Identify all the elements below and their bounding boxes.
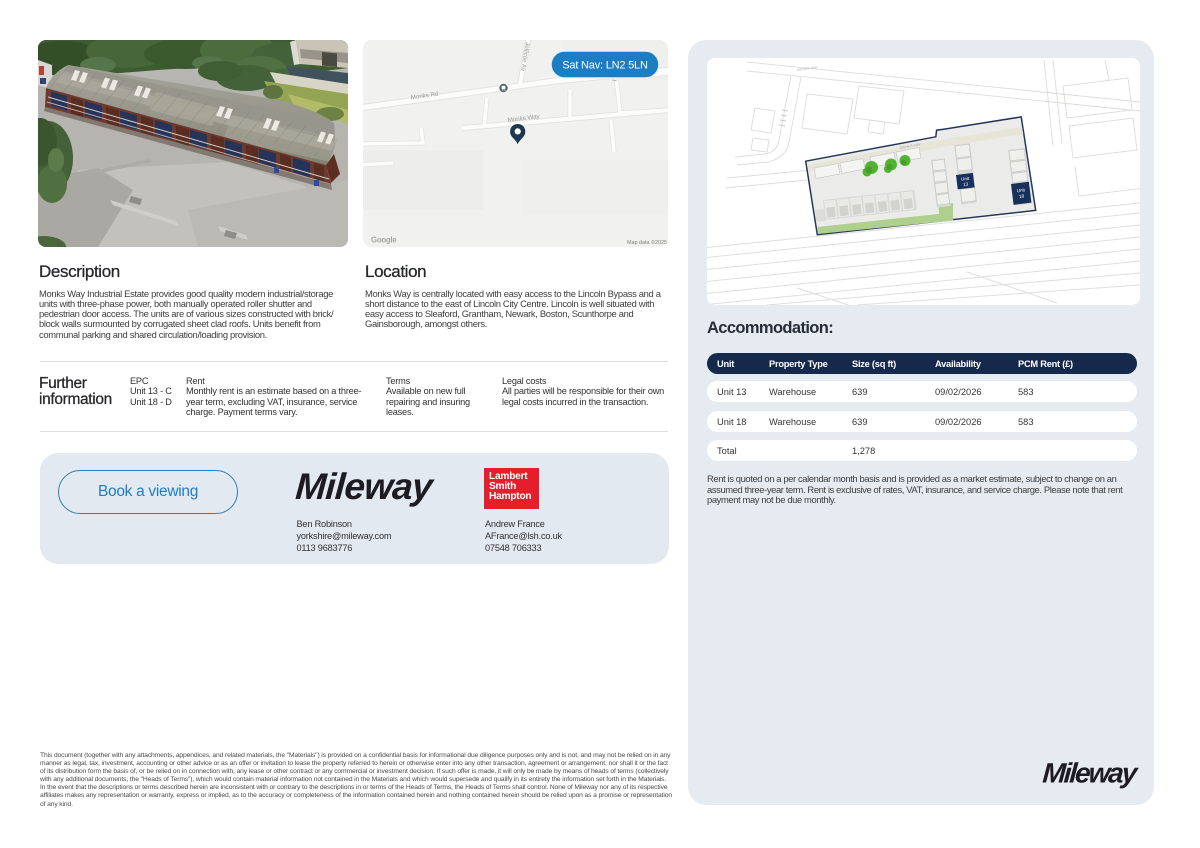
- svg-text:MONKS WAY: MONKS WAY: [797, 65, 819, 72]
- svg-text:Sat Nav: LN2 5LN: Sat Nav: LN2 5LN: [562, 60, 648, 72]
- svg-text:Mileway: Mileway: [294, 467, 436, 507]
- svg-text:Google: Google: [371, 236, 397, 245]
- svg-text:Mileway: Mileway: [1042, 757, 1140, 788]
- svg-text:Jellicoe Av: Jellicoe Av: [519, 42, 531, 73]
- svg-text:Map data ©2025: Map data ©2025: [627, 239, 667, 246]
- svg-text:Unit: Unit: [961, 176, 970, 182]
